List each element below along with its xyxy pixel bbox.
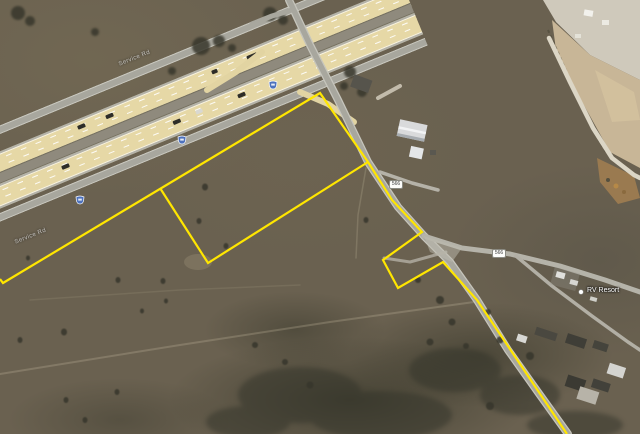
route-badge: 566 (492, 249, 506, 258)
small-structure (430, 150, 436, 155)
construction-site (543, 0, 640, 204)
north-building (350, 74, 372, 93)
poi-dot-icon (579, 290, 584, 295)
route-badge-label: 566 (392, 181, 400, 187)
barn-building (397, 119, 428, 141)
interstate-shield-icon (178, 136, 186, 144)
rv-resort-structures (550, 267, 597, 302)
gravel-drive (378, 86, 400, 98)
route-badge-label: 566 (495, 250, 503, 256)
interstate-shield-icon (76, 196, 84, 204)
field-trails (0, 168, 474, 374)
shed-building (409, 146, 424, 159)
interstate-shield-icon (269, 81, 277, 89)
map-overlay-svg (0, 0, 640, 434)
east-road (424, 236, 640, 292)
interstate-shields (76, 81, 277, 204)
poi-label: RV Resort (587, 287, 619, 294)
route-badge: 566 (389, 180, 403, 189)
satellite-map: 566 566 Service Rd Service Rd RV Resort (0, 0, 640, 434)
parcel-boundary-divider (160, 162, 368, 263)
